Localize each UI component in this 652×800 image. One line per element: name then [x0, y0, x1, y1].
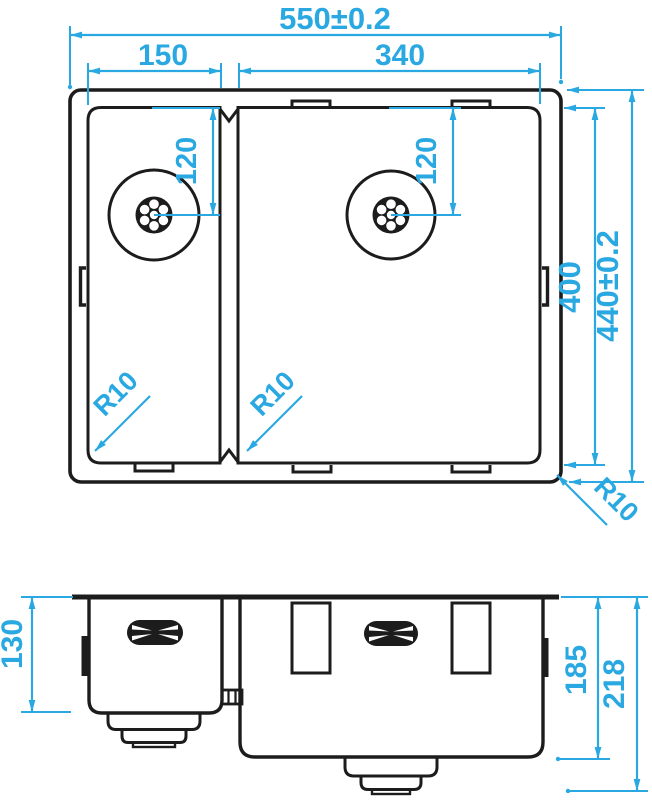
label-left-bowl-height: 130 [0, 619, 29, 669]
label-drain-offset-left: 120 [171, 137, 203, 185]
label-right-bowl-width: 340 [375, 39, 425, 72]
right-bowl [238, 108, 540, 464]
label-radius-left-bowl: R10 [88, 366, 144, 422]
clip-bottom-2 [293, 465, 331, 472]
label-drain-offset-right: 120 [411, 137, 443, 185]
front-view [72, 597, 559, 794]
label-overall-width: 550±0.2 [279, 1, 391, 36]
clip-aperture-1 [292, 603, 330, 673]
clip-right [542, 268, 548, 305]
drawing-canvas: 550±0.2 150 340 120 120 400 440±0.2 R10 … [0, 0, 652, 800]
clip-left [81, 268, 87, 305]
label-right-bowl-height: 185 [560, 645, 593, 695]
outer-rim [70, 90, 561, 482]
front-clip-left [82, 636, 89, 676]
divider-notch-bottom [220, 450, 238, 462]
front-clip-right [542, 638, 549, 677]
clip-bottom-1 [135, 464, 173, 471]
sink-technical-drawing: 550±0.2 150 340 120 120 400 440±0.2 R10 … [0, 0, 652, 800]
left-bowl-front [89, 599, 222, 713]
left-drain-fitting [108, 713, 200, 747]
clip-aperture-2 [452, 603, 490, 673]
label-overall-depth: 440±0.2 [590, 230, 625, 342]
label-radius-right-bowl: R10 [245, 366, 301, 422]
label-overall-height: 218 [598, 659, 631, 709]
divider-notch-top [220, 109, 238, 121]
label-radius-outer: R10 [588, 472, 644, 528]
left-vent-grille [127, 620, 183, 645]
right-drain-fitting [345, 757, 437, 794]
clip-bottom-3 [452, 465, 490, 472]
label-left-bowl-width: 150 [138, 39, 188, 72]
clip-top-2 [452, 101, 490, 106]
top-view [70, 90, 561, 482]
right-vent-grille [364, 621, 418, 646]
label-bowl-depth: 400 [552, 261, 587, 313]
clip-top-1 [292, 101, 330, 106]
